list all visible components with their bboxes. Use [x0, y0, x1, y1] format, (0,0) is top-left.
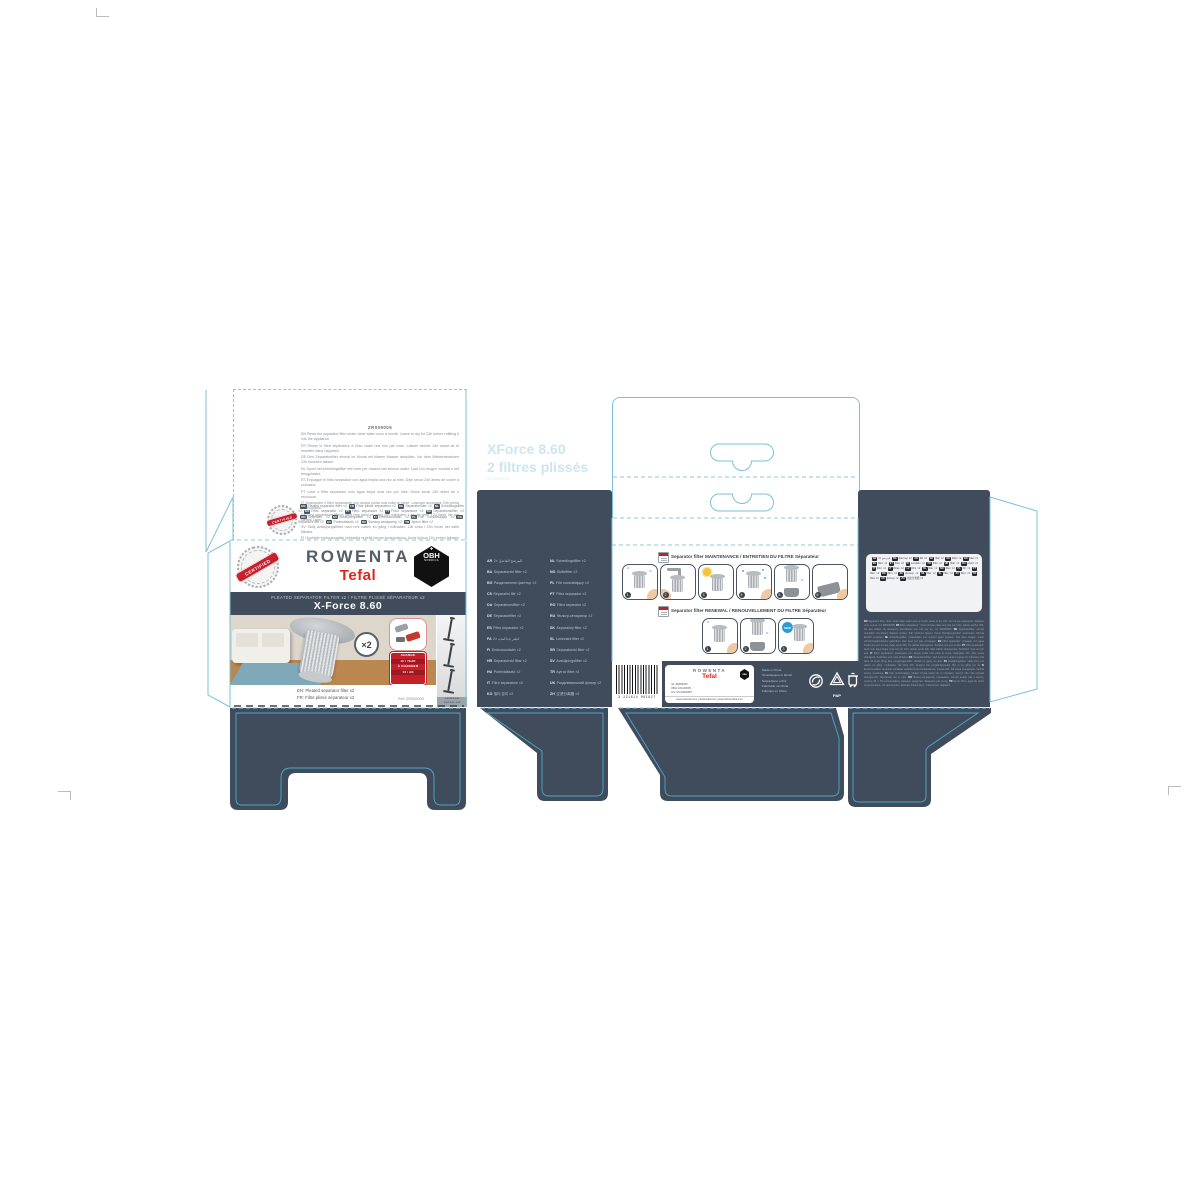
bottom-flap-side-left — [480, 708, 608, 801]
bottom-flap-side-right — [848, 708, 991, 807]
euro-slot-hole — [711, 444, 774, 471]
dieline-overlay — [0, 0, 1200, 1200]
bottom-flap-front — [230, 708, 466, 810]
cut-line — [612, 518, 858, 661]
packaging-dieline: ZR009005 EN Rinse the separator filter u… — [0, 0, 1200, 1200]
euro-slot-hole — [711, 494, 774, 511]
glue-flap-right — [990, 497, 1037, 702]
bottom-flap-middle — [618, 708, 844, 801]
glue-tab — [206, 497, 233, 552]
glue-tab — [208, 541, 230, 707]
